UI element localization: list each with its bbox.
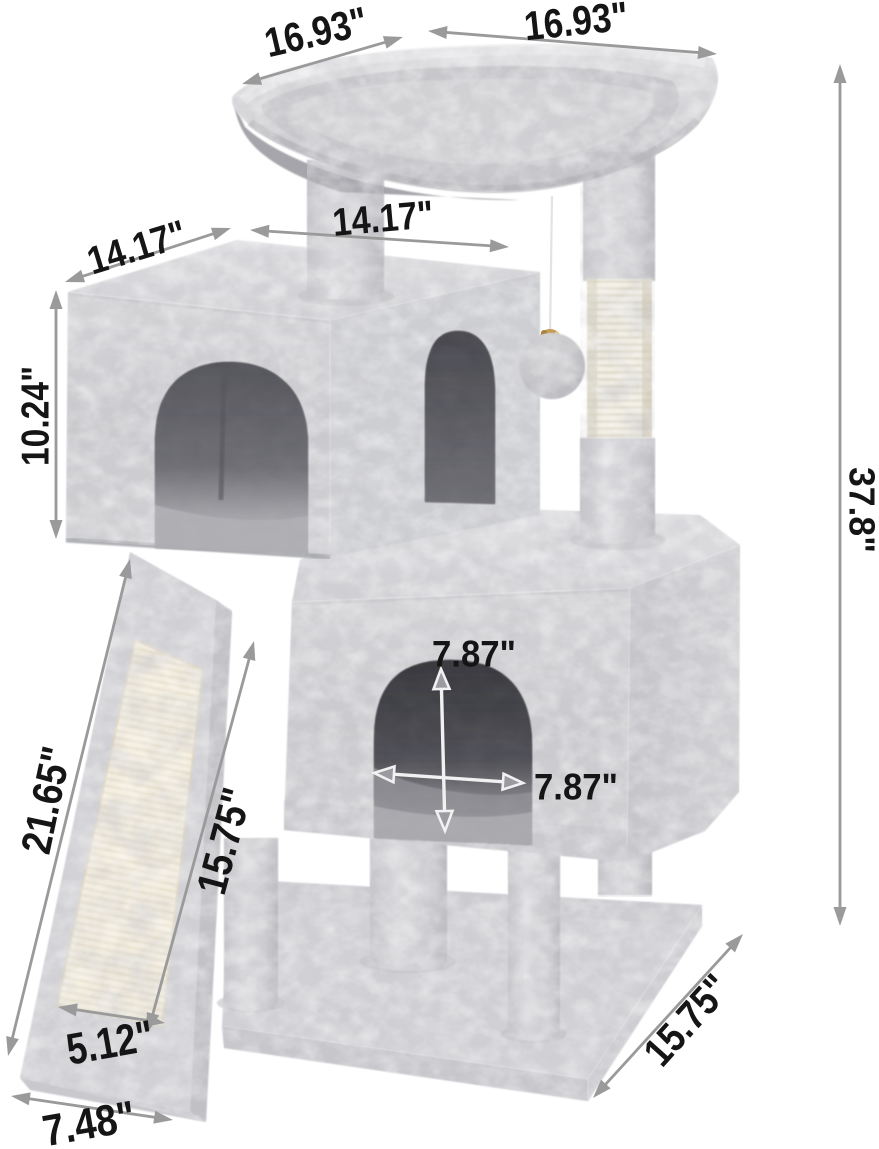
svg-text:14.17": 14.17"	[331, 193, 435, 245]
svg-text:7.87": 7.87"	[534, 767, 618, 808]
svg-text:37.8": 37.8"	[842, 467, 879, 553]
svg-text:10.24": 10.24"	[15, 366, 58, 466]
svg-text:7.87": 7.87"	[432, 634, 516, 675]
